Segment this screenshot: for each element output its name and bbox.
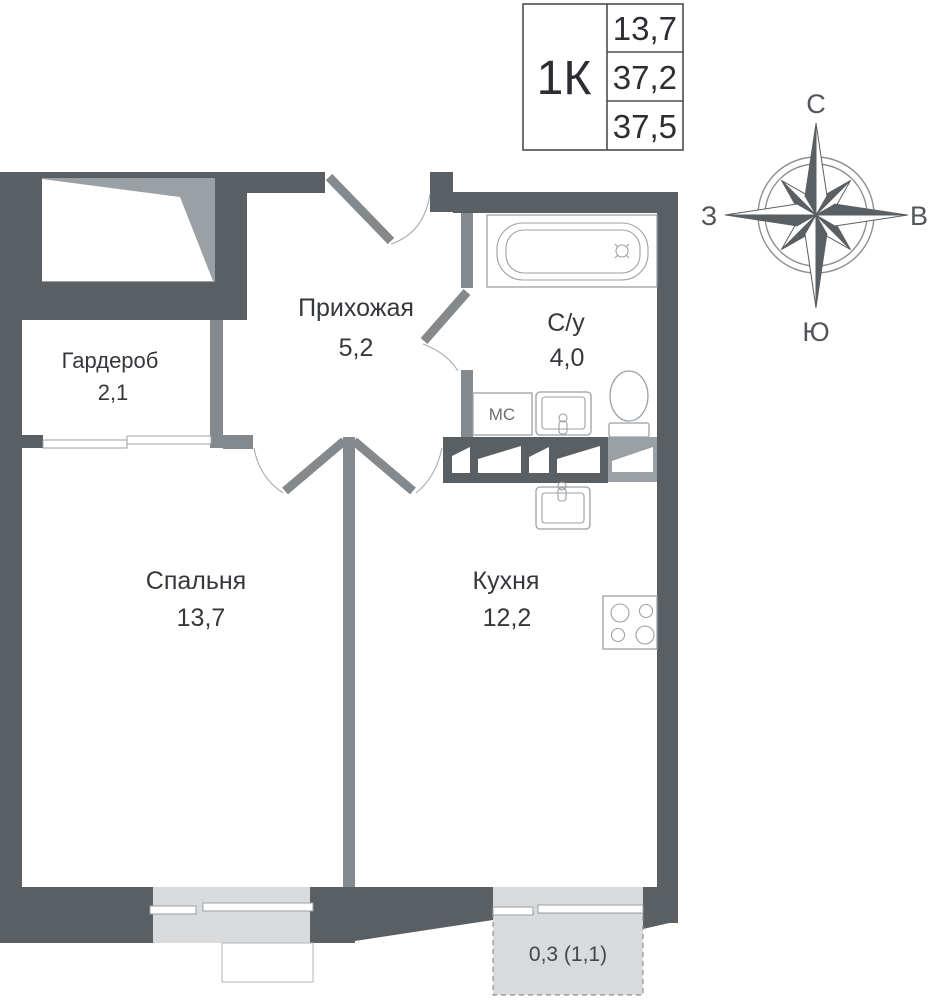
hallway-area: 5,2: [339, 334, 374, 362]
bedroom-area: 13,7: [177, 604, 226, 632]
stove: [603, 596, 657, 649]
bedroom-door-swing: [254, 448, 283, 493]
wall-bathroom-top: [453, 192, 678, 213]
shaft-block: [42, 178, 215, 282]
wall-entry-pier: [430, 172, 453, 212]
bathroom-door-swing: [423, 344, 458, 371]
compass-main-points: [725, 123, 908, 308]
wall-stub-wardrobe-right: [223, 435, 253, 449]
hatched-partition: [443, 437, 657, 483]
bedroom-window-sash-2: [203, 903, 313, 911]
wall-bottom-center: [310, 887, 355, 943]
bathroom-door-leaf: [424, 292, 467, 341]
bathtub: [487, 215, 657, 287]
toilet-bowl: [610, 371, 648, 421]
kitchen-area: 12,2: [483, 604, 532, 632]
bathroom-area: 4,0: [550, 344, 585, 372]
bathroom-name: С/у: [547, 309, 585, 337]
lower-balcony-outline: [222, 943, 313, 982]
compass-west-label: З: [701, 201, 717, 231]
wardrobe-sliding-panel-1: [43, 440, 127, 448]
wall-wardrobe-right: [210, 320, 223, 448]
bedroom-window-bay: [153, 887, 310, 943]
bedroom-door-leaf: [285, 441, 344, 491]
kitchen-door-leaf: [354, 441, 413, 491]
hallway-name: Прихожая: [298, 294, 414, 322]
area-value-2: 37,2: [613, 59, 677, 96]
compass-east-label: В: [910, 201, 928, 231]
bedroom-name: Спальня: [146, 567, 246, 595]
balcony-window-sash-1: [493, 907, 533, 915]
washing-machine: МС: [473, 393, 532, 435]
wall-bathroom-left-lower: [461, 370, 473, 437]
area-value-3: 37,5: [613, 108, 677, 145]
title-block: 1К 13,7 37,2 37,5: [523, 4, 683, 150]
washing-machine-label: МС: [489, 405, 515, 424]
entrance-door-swing: [391, 194, 430, 244]
floor-plan-page: 1К 13,7 37,2 37,5 С: [0, 0, 929, 1000]
wall-right: [657, 213, 678, 923]
wall-stub-wardrobe-left: [22, 435, 43, 448]
compass-rose: С Ю З В: [701, 89, 928, 347]
balcony-area-label: 0,3 (1,1): [529, 943, 607, 966]
kitchen-name: Кухня: [473, 567, 540, 595]
wardrobe-area: 2,1: [98, 380, 129, 405]
wall-bottom-kitchen: [355, 887, 493, 941]
toilet: [609, 371, 649, 437]
toilet-tank: [609, 423, 649, 437]
wall-bedroom-kitchen: [343, 437, 355, 887]
wall-bathroom-left-upper: [461, 213, 473, 288]
compass-north-label: С: [806, 89, 826, 119]
area-value-1: 13,7: [613, 10, 677, 47]
wardrobe-sliding-panel-2: [127, 436, 211, 444]
entrance-door-leaf: [329, 177, 391, 241]
wall-bottom-bedroom-left: [0, 887, 153, 943]
kitchen-sink: [536, 482, 590, 529]
wardrobe-name: Гардероб: [62, 348, 159, 373]
wall-top: [247, 172, 325, 193]
balcony-area: [493, 887, 643, 995]
stove-body: [603, 596, 657, 649]
kitchen-door-swing: [416, 448, 442, 493]
apartment-type-label: 1К: [537, 52, 592, 105]
bathtub-outer: [487, 215, 657, 287]
balcony-window-sash-2: [538, 905, 643, 913]
bathroom-sink: [536, 392, 591, 435]
floor-plan-canvas: 1К 13,7 37,2 37,5 С: [0, 0, 929, 1000]
bedroom-window-sash-1: [150, 906, 196, 914]
compass-south-label: Ю: [802, 317, 829, 347]
